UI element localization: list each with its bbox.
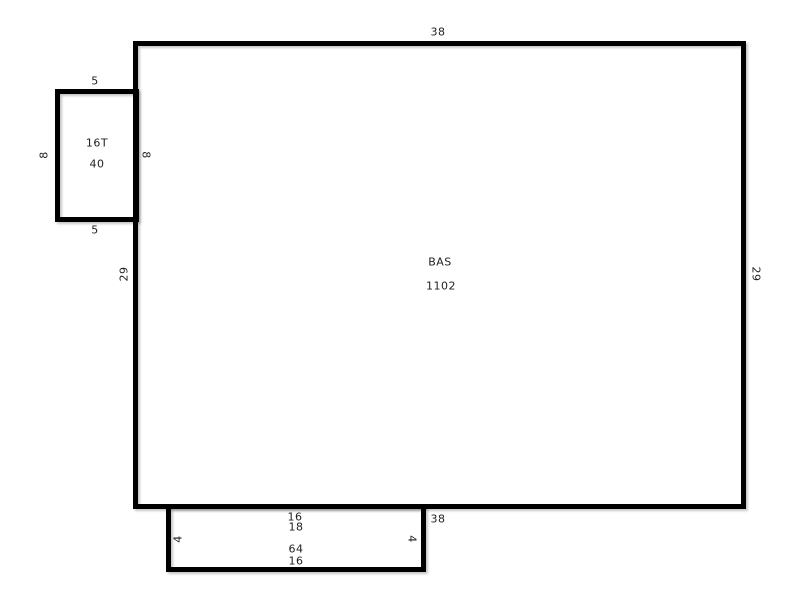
16t-area-label: 16T [86, 138, 108, 149]
16t-area-value: 40 [90, 159, 105, 170]
16t-dim-bottom: 5 [91, 225, 99, 236]
addition-dim-left: 4 [173, 535, 184, 543]
bas-dim-right: 29 [751, 267, 762, 282]
16t-dim-left: 8 [39, 151, 50, 159]
addition-dim-bottom: 16 [289, 556, 304, 567]
bas-dim-top: 38 [431, 27, 446, 38]
bas-dim-left-upper: 8 [141, 151, 152, 159]
bas-area-outline [133, 41, 746, 509]
bas-area-value: 1102 [426, 281, 456, 292]
property-sketch: BAS 1102 38 38 29 29 8 16T 40 5 5 8 16 1… [0, 0, 800, 600]
addition-dim-top2: 18 [289, 522, 304, 533]
addition-area-value: 64 [289, 544, 304, 555]
16t-area-outline [55, 89, 139, 222]
16t-dim-top: 5 [91, 76, 99, 87]
bas-dim-bottom: 38 [431, 514, 446, 525]
bas-dim-left: 29 [119, 267, 130, 282]
bas-area-label: BAS [428, 257, 452, 268]
addition-dim-right: 4 [407, 535, 418, 543]
